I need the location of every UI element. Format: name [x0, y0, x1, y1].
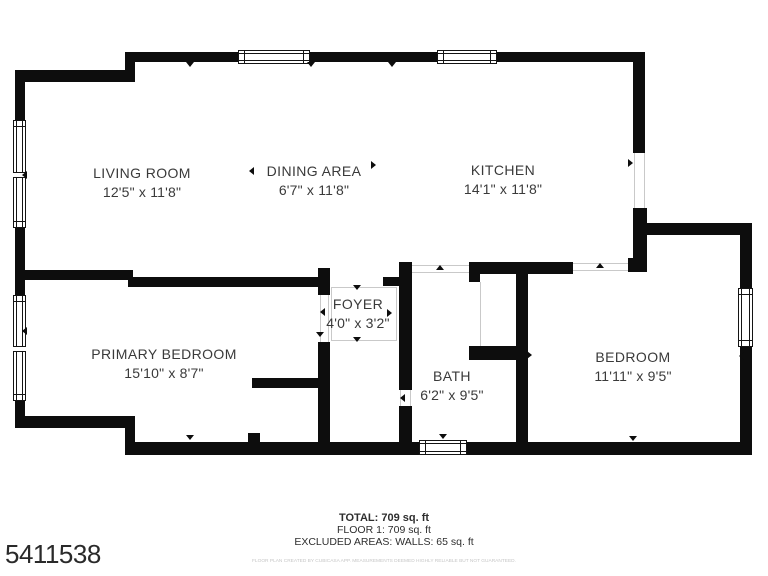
door-opening-mark [353, 337, 361, 342]
door-opening-mark [629, 436, 637, 441]
wall-segment [15, 228, 25, 295]
wall-segment [318, 342, 330, 455]
wall-segment [399, 406, 412, 455]
room-dimensions: 14'1" x 11'8" [464, 180, 542, 199]
door-opening-mark [307, 62, 315, 67]
door-opening-mark [596, 263, 604, 268]
wall-segment [125, 52, 645, 62]
window-symbol [419, 440, 467, 455]
door-opening-mark [400, 394, 405, 402]
room-dimensions: 6'2" x 9'5" [420, 386, 483, 405]
wall-segment [15, 401, 25, 428]
door-opening-mark [436, 265, 444, 270]
room-name: PRIMARY BEDROOM [91, 345, 237, 364]
window-end-bar [739, 294, 752, 295]
room-name: FOYER [326, 295, 389, 314]
room-name: BEDROOM [594, 348, 671, 367]
floor-plan-canvas: LIVING ROOM12'5" x 11'8"DINING AREA6'7" … [0, 0, 768, 576]
window-symbol [13, 295, 26, 401]
opening-guide-line [644, 153, 645, 208]
window-end-bar [490, 51, 491, 63]
door-opening-mark [316, 332, 324, 337]
room-dimensions: 11'11" x 9'5" [594, 367, 671, 386]
window-frame-lines [239, 53, 309, 61]
room-dimensions: 6'7" x 11'8" [267, 181, 362, 200]
window-end-bar [14, 221, 25, 222]
opening-guide-line [331, 340, 397, 341]
floor-plan: LIVING ROOM12'5" x 11'8"DINING AREA6'7" … [0, 0, 768, 576]
window-symbol [437, 50, 497, 64]
wall-segment [640, 223, 752, 235]
door-opening-mark [388, 62, 396, 67]
room-label-bath: BATH6'2" x 9'5" [420, 367, 483, 405]
window-end-bar [14, 301, 25, 302]
wall-segment [469, 346, 528, 360]
door-opening-mark [186, 62, 194, 67]
wall-segment [469, 262, 480, 282]
opening-guide-line [412, 272, 469, 273]
door-opening-mark [353, 285, 361, 290]
window-frame-lines [438, 53, 496, 61]
room-label-bedroom: BEDROOM11'11" x 9'5" [594, 348, 671, 386]
door-opening-mark [527, 351, 532, 359]
window-end-bar [14, 126, 25, 127]
window-sash-divider [13, 346, 26, 352]
opening-guide-line [410, 390, 411, 406]
window-end-bar [443, 51, 444, 63]
wall-segment [248, 433, 260, 444]
window-symbol [238, 50, 310, 64]
wall-segment [25, 416, 135, 428]
room-dimensions: 4'0" x 3'2" [326, 314, 389, 333]
wall-segment [318, 268, 330, 295]
wall-segment [628, 258, 647, 272]
door-opening-mark [739, 352, 744, 360]
door-opening-mark [22, 171, 27, 179]
door-opening-mark [371, 161, 376, 169]
room-label-foyer: FOYER4'0" x 3'2" [326, 295, 389, 333]
window-end-bar [739, 340, 752, 341]
window-end-bar [14, 394, 25, 395]
wall-segment [128, 277, 320, 287]
room-dimensions: 12'5" x 11'8" [93, 183, 191, 202]
opening-guide-line [331, 287, 397, 288]
window-end-bar [425, 441, 426, 454]
room-name: BATH [420, 367, 483, 386]
floor-area-text: FLOOR 1: 709 sq. ft [0, 525, 768, 537]
room-label-primary-bedroom: PRIMARY BEDROOM15'10" x 8'7" [91, 345, 237, 383]
excluded-area-text: EXCLUDED AREAS: WALLS: 65 sq. ft [0, 537, 768, 549]
room-label-dining-area: DINING AREA6'7" x 11'8" [267, 162, 362, 200]
wall-segment [125, 416, 135, 455]
room-label-kitchen: KITCHEN14'1" x 11'8" [464, 161, 542, 199]
door-opening-mark [186, 435, 194, 440]
wall-segment [633, 52, 645, 153]
area-summary: TOTAL: 709 sq. ft FLOOR 1: 709 sq. ft EX… [0, 512, 768, 548]
wall-segment [740, 223, 752, 288]
window-end-bar [460, 441, 461, 454]
door-opening-mark [320, 308, 325, 316]
opening-guide-line [634, 153, 635, 208]
window-symbol [738, 288, 753, 347]
room-dimensions: 15'10" x 8'7" [91, 364, 237, 383]
plan-id: 5411538 [5, 540, 101, 568]
disclaimer: FLOOR PLAN CREATED BY CUBICASA APP. MEAS… [0, 552, 768, 570]
room-name: DINING AREA [267, 162, 362, 181]
disclaimer-text: FLOOR PLAN CREATED BY CUBICASA APP. MEAS… [252, 558, 516, 563]
room-name: KITCHEN [464, 161, 542, 180]
wall-segment [740, 347, 752, 455]
door-opening-mark [249, 167, 254, 175]
room-label-living-room: LIVING ROOM12'5" x 11'8" [93, 164, 191, 202]
door-opening-mark [22, 327, 27, 335]
window-end-bar [244, 51, 245, 63]
wall-segment [383, 277, 400, 286]
wall-segment [15, 70, 133, 82]
door-opening-mark [439, 434, 447, 439]
opening-guide-line [573, 270, 628, 271]
wall-segment [399, 262, 412, 390]
door-opening-mark [628, 159, 633, 167]
window-frame-lines [741, 289, 750, 346]
wall-segment [25, 270, 133, 280]
opening-guide-line [396, 287, 397, 341]
window-end-bar [303, 51, 304, 63]
room-name: LIVING ROOM [93, 164, 191, 183]
opening-guide-line [480, 282, 481, 346]
